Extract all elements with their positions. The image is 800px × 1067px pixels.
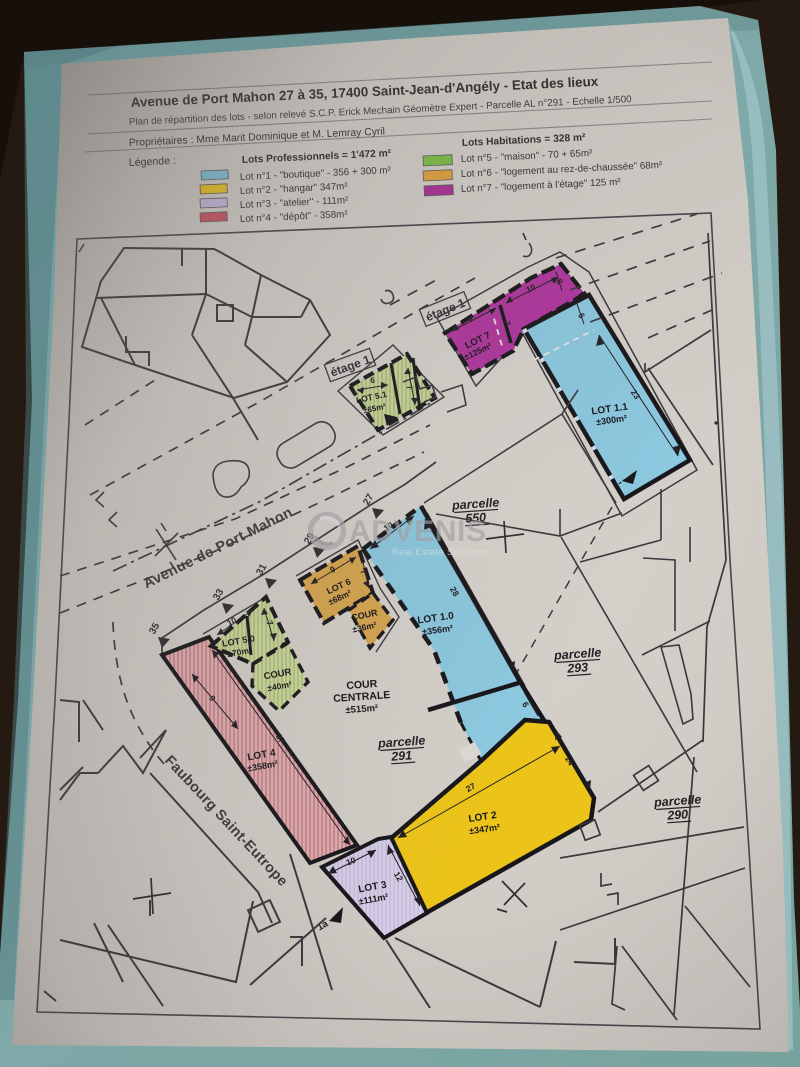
svg-text:293: 293 [566, 660, 589, 675]
svg-text:290: 290 [666, 807, 689, 822]
svg-text:±515m²: ±515m² [345, 703, 378, 716]
svg-text:Real Estate Solutions: Real Estate Solutions [392, 547, 489, 557]
svg-text:ADVENIS: ADVENIS [349, 515, 487, 548]
svg-text:Légende :: Légende : [129, 155, 177, 169]
svg-text:291: 291 [390, 748, 413, 763]
